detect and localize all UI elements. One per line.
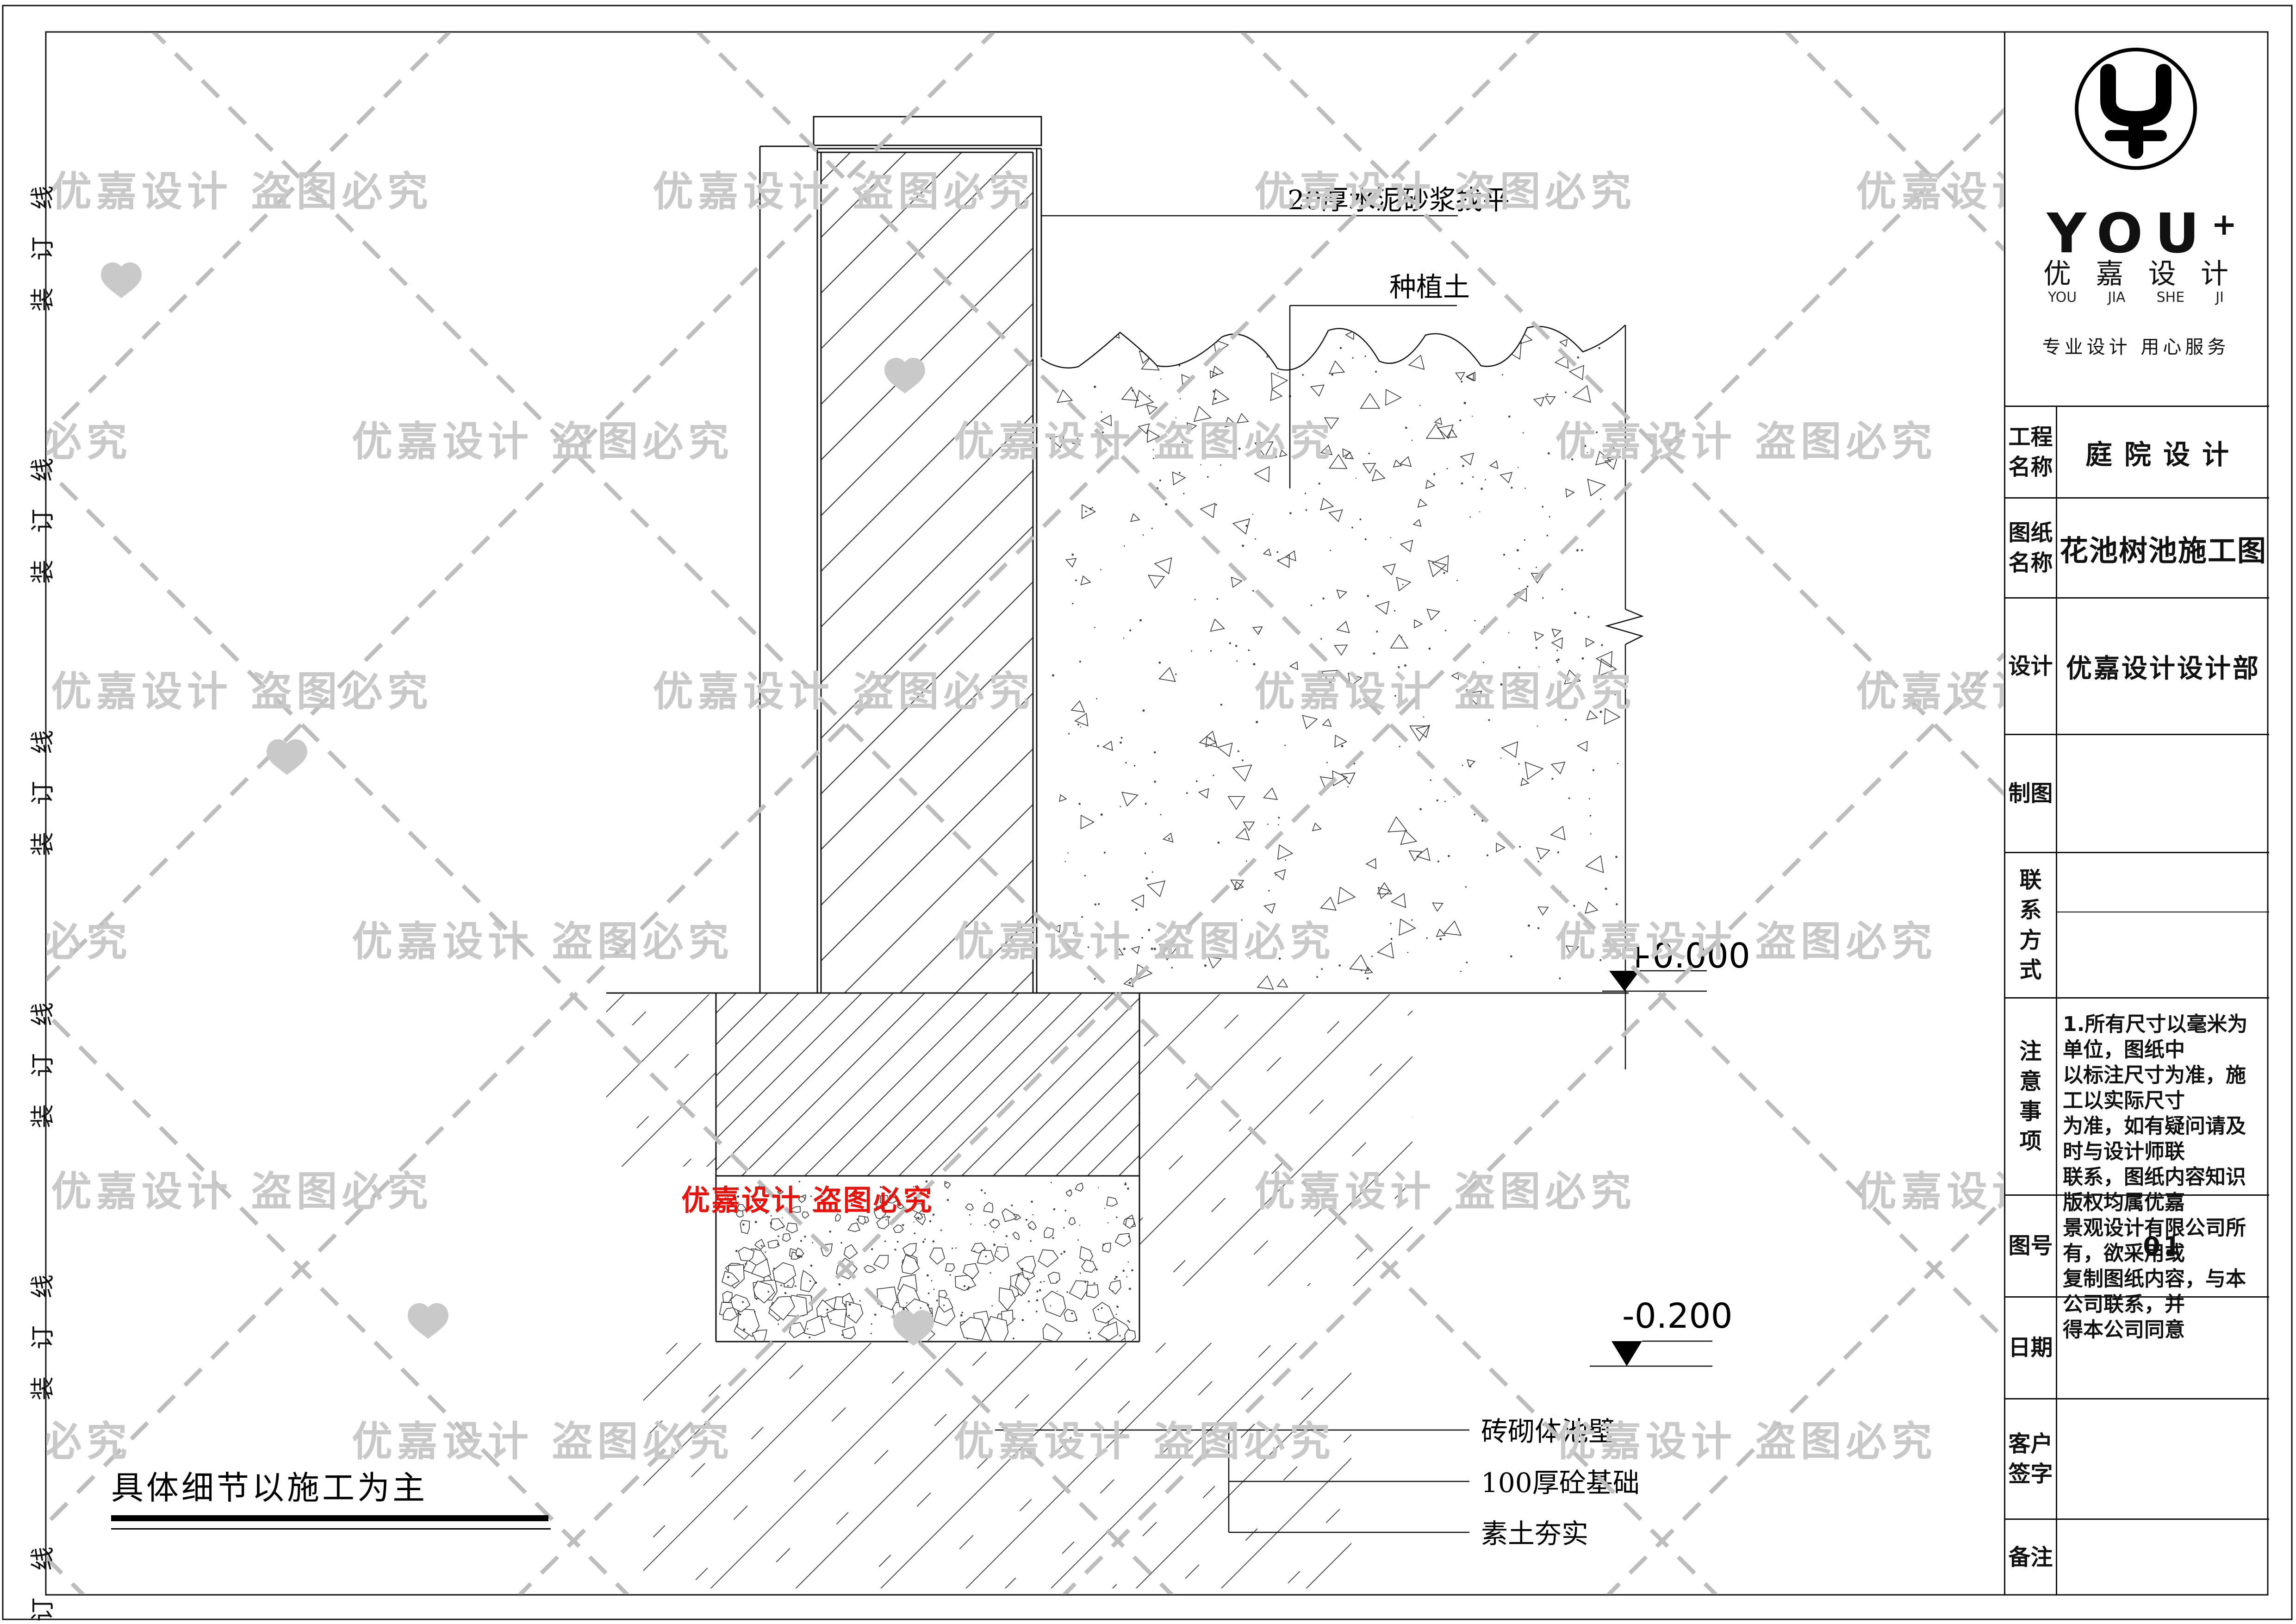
heart-icon (101, 262, 142, 298)
gray-watermark-text: 优嘉设计 盗图必究 (953, 918, 1335, 965)
dashed-grid-line (402, 0, 2114, 1624)
gray-watermark-text: 优嘉设计 盗图必究 (51, 1168, 433, 1215)
dashed-grid-line (122, 0, 1834, 1624)
titleblock-row-project: 工程名称 庭院设计 (2005, 406, 2269, 497)
date-value (2057, 1298, 2269, 1398)
row-label: 图号 (2008, 1231, 2053, 1261)
contact-value (2057, 853, 2269, 997)
row-label: 设计 (2008, 651, 2053, 681)
sheet-name-value: 花池树池施工图 (2057, 499, 2269, 597)
designer-value: 优嘉设计设计部 (2057, 599, 2269, 734)
gray-watermark-text: 优嘉设计 盗图必究 (1555, 918, 1937, 965)
contact-subdivider (2057, 912, 2269, 912)
red-watermark-text: 优嘉设计 盗图必究 (681, 1177, 933, 1218)
row-label: 联系方式 (2018, 865, 2043, 985)
gray-watermark-text: 优嘉设计 盗图必究 (0, 918, 132, 965)
gray-watermark-text: 优嘉设计 盗图必究 (51, 168, 433, 215)
dashed-grid-line (0, 0, 481, 1624)
titleblock-row-notes: 注意事项 1.所有尺寸以毫米为单位，图纸中 以标注尺寸为准，施工以实际尺寸 为准… (2005, 997, 2269, 1194)
row-label: 制图 (2008, 779, 2053, 809)
gray-watermark-text: 优嘉设计 盗图必究 (352, 418, 734, 465)
project-name-value: 庭院设计 (2057, 407, 2269, 497)
footnote-thick-rule (111, 1515, 548, 1521)
heart-icon (884, 358, 925, 394)
dashed-grid-line (0, 0, 1290, 1624)
titleblock-row-sheet: 图纸名称 花池树池施工图 (2005, 497, 2269, 597)
titleblock-row-number: 图号 01 (2005, 1194, 2269, 1296)
gray-watermark-text: 优嘉设计 盗图必究 (352, 918, 734, 965)
construction-footnote: 具体细节以施工为主 (111, 1462, 555, 1530)
gray-watermark-text: 优嘉设计 盗图必究 (1254, 668, 1636, 715)
gray-watermark-text: 优嘉设计 盗图必究 (653, 168, 1034, 215)
row-label: 图纸名称 (2006, 518, 2056, 578)
client-signature-value (2057, 1399, 2269, 1518)
remarks-value (2057, 1520, 2269, 1595)
titleblock-row-signature: 客户签字 (2005, 1398, 2269, 1518)
titleblock-row-date: 日期 (2005, 1296, 2269, 1398)
gray-watermark-text: 优嘉设计 盗图必究 (1254, 168, 1636, 215)
row-label: 备注 (2008, 1543, 2053, 1573)
notes-value: 1.所有尺寸以毫米为单位，图纸中 以标注尺寸为准，施工以实际尺寸 为准，如有疑问… (2057, 999, 2269, 1194)
titleblock-row-design: 设计 优嘉设计设计部 (2005, 597, 2269, 734)
drawing-sheet: 20厚水泥砂浆找平 种植土 砖砌体池壁 100厚砼基础 素土夯实 +0.000 … (0, 0, 2296, 1624)
titleblock-row-contact: 联系方式 (2005, 852, 2269, 997)
gray-watermark-text: 优嘉设计 盗图必究 (51, 668, 433, 715)
title-block: 工程名称 庭院设计 图纸名称 花池树池施工图 设计 优嘉设计设计部 制图 联系方… (2004, 32, 2268, 1595)
gray-watermark-text: 优嘉设计 盗图必究 (1254, 1168, 1636, 1215)
row-label: 注意事项 (2018, 1037, 2043, 1156)
titleblock-row-draft: 制图 (2005, 734, 2269, 852)
row-label: 工程名称 (2006, 422, 2056, 482)
heart-icon (408, 1303, 448, 1339)
watermark-layer: 优嘉设计 盗图必究优嘉设计 盗图必究优嘉设计 盗图必究优嘉设计 盗图必究优嘉设计… (0, 0, 2296, 1624)
dashed-grid-line (0, 0, 1026, 1624)
gray-watermark-text: 优嘉设计 盗图必究 (1555, 1418, 1937, 1465)
gray-watermark-text: 优嘉设计 盗图必究 (953, 418, 1335, 465)
row-label: 客户签字 (2006, 1429, 2056, 1489)
titleblock-row-remarks: 备注 (2005, 1518, 2269, 1595)
gray-watermark-text: 优嘉设计 盗图必究 (653, 668, 1034, 715)
footnote-thin-rule (111, 1528, 551, 1530)
heart-icon (267, 739, 307, 775)
gray-watermark-text: 优嘉设计 盗图必究 (352, 1418, 734, 1465)
gray-watermark-text: 优嘉设计 盗图必究 (0, 1418, 132, 1465)
heart-icon (893, 1310, 934, 1346)
sheet-number-value: 01 (2057, 1196, 2269, 1296)
dashed-grid-line (0, 0, 746, 1624)
gray-watermark-text: 优嘉设计 盗图必究 (0, 418, 132, 465)
footnote-text: 具体细节以施工为主 (111, 1462, 555, 1509)
gray-watermark-text: 优嘉设计 盗图必究 (953, 1418, 1335, 1465)
row-label: 日期 (2008, 1333, 2053, 1363)
drafter-value (2057, 735, 2269, 852)
gray-watermark-text: 优嘉设计 盗图必究 (1555, 418, 1937, 465)
